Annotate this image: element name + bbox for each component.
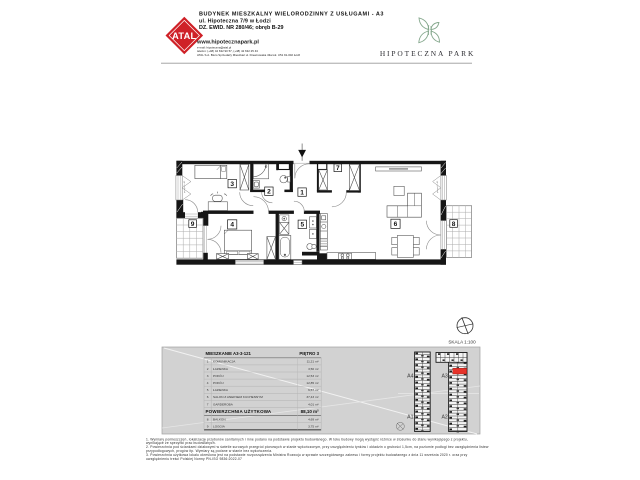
svg-text:A3: A3: [441, 374, 447, 380]
svg-text:7: 7: [207, 402, 209, 406]
svg-text:9: 9: [191, 221, 195, 228]
svg-text:4,69 m²: 4,69 m²: [308, 418, 319, 422]
svg-text:ŁAZIENKA: ŁAZIENKA: [213, 388, 229, 392]
svg-text:ul. Hipoteczna 7/9 w Łodzi: ul. Hipoteczna 7/9 w Łodzi: [199, 18, 271, 24]
svg-text:4: 4: [230, 222, 234, 229]
svg-text:6: 6: [207, 395, 209, 399]
svg-text:37,43 m²: 37,43 m²: [306, 395, 318, 399]
svg-text:KOMUNIKACJA: KOMUNIKACJA: [213, 360, 236, 364]
svg-text:6,57 m²: 6,57 m²: [308, 388, 319, 392]
svg-text:11,21 m²: 11,21 m²: [307, 360, 319, 364]
svg-text:3,75 m²: 3,75 m²: [308, 425, 319, 429]
svg-text:BALKON: BALKON: [213, 418, 226, 422]
svg-text:uwzględnieniu treści Polskiej: uwzględnieniu treści Polskiej Normy PN-I…: [146, 457, 242, 461]
svg-text:MIESZKANIE A3-3-121: MIESZKANIE A3-3-121: [206, 351, 252, 356]
svg-text:88,10 m²: 88,10 m²: [301, 409, 320, 414]
svg-text:3,50 m²: 3,50 m²: [308, 367, 319, 371]
svg-text:12,85 m²: 12,85 m²: [306, 381, 318, 385]
svg-text:1: 1: [207, 360, 209, 364]
svg-text:6: 6: [394, 221, 398, 228]
svg-text:3: 3: [230, 181, 234, 188]
svg-text:2: 2: [267, 189, 271, 196]
svg-text:HIPOTECZNA PARK: HIPOTECZNA PARK: [380, 49, 475, 58]
svg-text:SKALA 1:100: SKALA 1:100: [448, 340, 476, 345]
svg-text:4: 4: [207, 381, 209, 385]
svg-text:7: 7: [336, 165, 340, 172]
svg-text:BUDYNEK MIESZKALNY WIELORODZIN: BUDYNEK MIESZKALNY WIELORODZINNY Z USŁUG…: [199, 12, 384, 18]
svg-text:parapet h=85: parapet h=85: [183, 180, 186, 193]
svg-text:3: 3: [207, 374, 209, 378]
svg-text:PIĘTRO 3: PIĘTRO 3: [299, 351, 319, 356]
svg-text:5: 5: [207, 388, 209, 392]
svg-text:POKÓJ: POKÓJ: [213, 380, 224, 385]
svg-text:12,53 m²: 12,53 m²: [306, 374, 318, 378]
svg-text:GARDEROBA: GARDEROBA: [213, 402, 234, 406]
svg-text:2: 2: [207, 367, 209, 371]
svg-text:DZ. EWID. NR 280/46; obręb B-2: DZ. EWID. NR 280/46; obręb B-29: [199, 25, 283, 31]
svg-text:SALON Z ANEKSEM KUCHENNYM: SALON Z ANEKSEM KUCHENNYM: [213, 395, 263, 399]
svg-text:ŁAZIENKA: ŁAZIENKA: [213, 367, 229, 371]
svg-text:8: 8: [452, 221, 456, 228]
svg-text:A2: A2: [441, 415, 447, 421]
svg-text:POKÓJ: POKÓJ: [213, 373, 224, 378]
svg-text:ATAL S.A. Biuro Sprzedaży Mies: ATAL S.A. Biuro Sprzedaży Mieszkań ul. D…: [197, 53, 301, 57]
svg-text:4,01 m²: 4,01 m²: [308, 402, 319, 406]
svg-text:A1: A1: [407, 415, 413, 421]
svg-text:9: 9: [207, 425, 209, 429]
svg-text:1: 1: [300, 189, 304, 196]
svg-text:POWIERZCHNIA UŻYTKOWA: POWIERZCHNIA UŻYTKOWA: [206, 408, 272, 414]
svg-text:ATAL: ATAL: [172, 31, 196, 41]
svg-text:LOGGIA: LOGGIA: [213, 425, 226, 429]
svg-text:5: 5: [300, 222, 304, 229]
svg-text:8: 8: [207, 418, 209, 422]
svg-text:A4: A4: [407, 374, 413, 380]
